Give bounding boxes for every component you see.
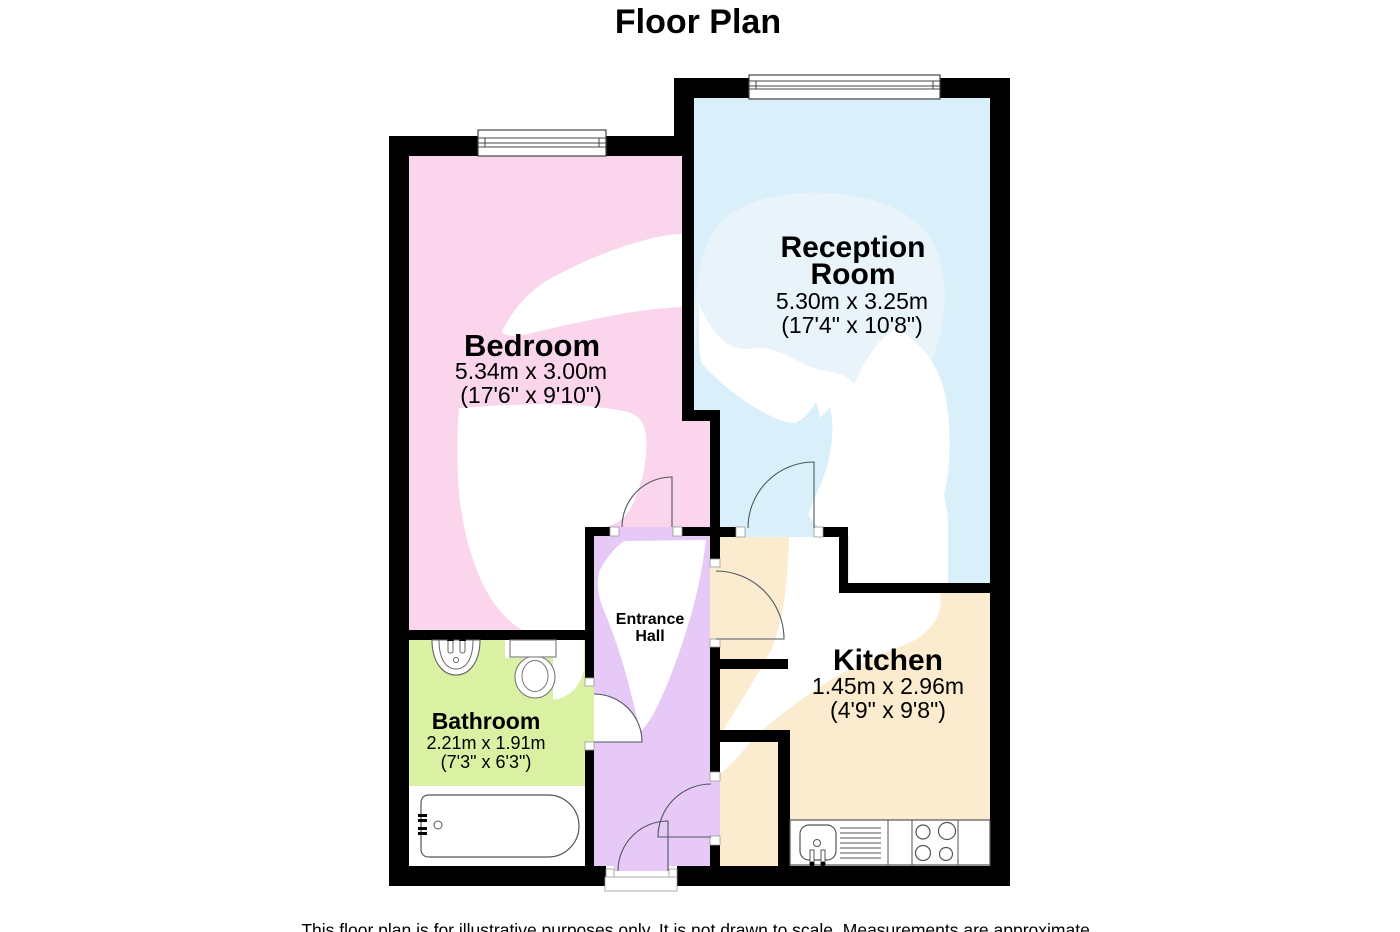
svg-text:Hall: Hall bbox=[635, 628, 664, 645]
svg-text:2.21m x 1.91m: 2.21m x 1.91m bbox=[426, 733, 545, 753]
svg-text:5.30m x 3.25m: 5.30m x 3.25m bbox=[776, 288, 928, 314]
svg-text:Floor Plan: Floor Plan bbox=[615, 3, 781, 41]
svg-text:This floor plan is for illustr: This floor plan is for illustrative purp… bbox=[301, 920, 1094, 932]
svg-text:5.34m x 3.00m: 5.34m x 3.00m bbox=[455, 358, 607, 384]
svg-text:1.45m x 2.96m: 1.45m x 2.96m bbox=[812, 673, 964, 699]
svg-text:Room: Room bbox=[811, 258, 896, 291]
svg-text:(17'6" x 9'10"): (17'6" x 9'10") bbox=[460, 382, 601, 408]
svg-text:Entrance: Entrance bbox=[616, 611, 685, 628]
svg-text:(17'4" x 10'8"): (17'4" x 10'8") bbox=[781, 312, 922, 338]
svg-text:(7'3" x 6'3"): (7'3" x 6'3") bbox=[441, 752, 532, 772]
svg-text:(4'9" x 9'8"): (4'9" x 9'8") bbox=[830, 697, 946, 723]
svg-text:Bathroom: Bathroom bbox=[432, 708, 541, 734]
